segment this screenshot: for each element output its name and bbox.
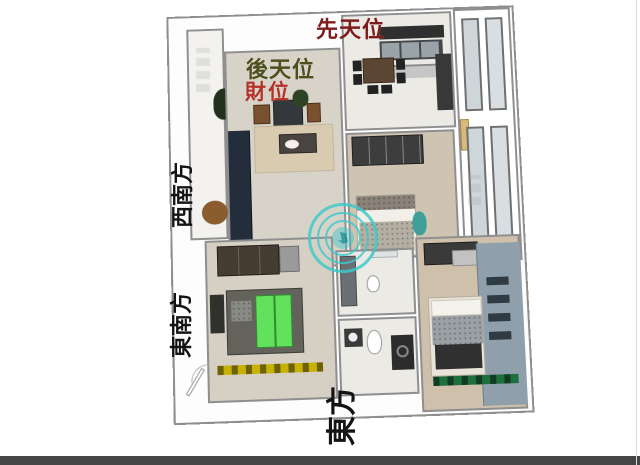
fridge <box>435 54 453 111</box>
armchair <box>253 104 270 124</box>
label-direction-southeast: 東南方 <box>172 289 196 361</box>
cabinet <box>452 249 479 266</box>
label-direction-east: 東方 <box>328 381 362 451</box>
floorplan-screenshot: 先天位 後天位 財位 西南方 東南方 東方 <box>0 0 640 465</box>
chair <box>353 60 362 71</box>
plant-icon <box>292 89 308 107</box>
window <box>490 125 514 250</box>
foot-bench <box>435 343 483 369</box>
label-direction-southwest: 西南方 <box>173 159 197 231</box>
shelf <box>486 276 509 285</box>
wall-watermark <box>468 175 481 205</box>
bed-frame <box>226 288 305 356</box>
window <box>461 18 483 111</box>
green-highlight-mattress <box>255 294 293 348</box>
basin <box>348 332 357 341</box>
chair <box>396 59 405 70</box>
label-houtianwei: 後天位 <box>246 60 315 82</box>
coffee-table <box>279 133 317 154</box>
chair <box>353 74 362 85</box>
armchair <box>307 103 321 123</box>
tray <box>285 140 299 149</box>
balcony-windows <box>453 7 523 262</box>
right-edge-line <box>636 0 637 465</box>
wardrobe <box>217 244 280 276</box>
yellow-highlight-bar <box>217 362 323 375</box>
shelf <box>487 295 510 304</box>
plant-icon <box>412 211 427 235</box>
shelf <box>489 331 512 340</box>
circular-watermark <box>308 203 378 273</box>
pillows <box>231 301 252 322</box>
cabinet <box>279 246 300 273</box>
sink-unit <box>344 328 363 347</box>
bedroom-3 <box>415 234 528 412</box>
label-xiantianwei: 先天位 <box>316 20 385 42</box>
washer-door <box>396 345 409 358</box>
blanket <box>432 315 484 345</box>
bed <box>428 296 486 377</box>
washing-machine <box>391 335 415 370</box>
toilet <box>366 330 382 355</box>
window <box>485 17 507 110</box>
wall-watermark <box>196 48 210 92</box>
dining-table <box>362 57 395 83</box>
upper-cabinets <box>379 25 444 40</box>
wardrobe <box>351 134 424 166</box>
label-caiwei: 財位 <box>245 82 291 103</box>
headboard <box>356 195 414 211</box>
toilet <box>366 275 380 293</box>
chair <box>381 85 392 94</box>
bath-window <box>372 250 398 258</box>
shelf <box>488 313 511 322</box>
pillows <box>431 299 482 317</box>
chair <box>367 85 378 94</box>
chair <box>396 72 405 83</box>
tv-cabinet <box>210 295 225 334</box>
pouf <box>202 200 229 225</box>
bottom-dark-strip <box>0 456 640 465</box>
rug <box>254 124 335 174</box>
